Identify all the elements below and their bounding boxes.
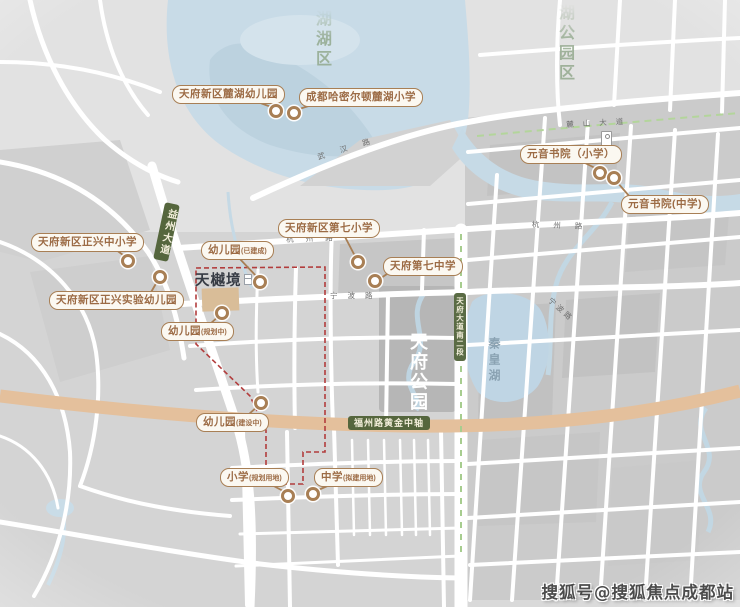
school-marker <box>368 274 382 288</box>
school-pill-luhu-kindergarten: 天府新区麓湖幼儿园 <box>172 85 285 104</box>
project-label: 天樾境 <box>195 274 252 289</box>
school-marker <box>607 171 621 185</box>
school-pill-text: 元音书院（小学） <box>527 148 615 160</box>
school-marker <box>254 396 268 410</box>
landmark-icon <box>601 131 612 146</box>
watermark: 搜狐号@搜狐焦点成都站 <box>542 579 735 603</box>
school-pill-zhengxing-exp-kindergarten: 天府新区正兴实验幼儿园 <box>49 291 184 310</box>
project-name: 天樾境 <box>195 274 242 289</box>
road-badge-tianfu-avenue-s2: 天府大道南二段 <box>454 293 466 361</box>
road-name-wuhan: 武汉路 <box>316 131 387 162</box>
school-pill-text: 天府新区麓湖幼儿园 <box>179 88 278 100</box>
school-marker <box>121 254 135 268</box>
road-badge-yizhou-avenue: 益州大道 <box>153 202 180 262</box>
district-label-park: 湖公园区 <box>552 4 576 84</box>
school-pill-sub: (建设中) <box>236 420 262 427</box>
school-pill-text: 中学 <box>321 471 343 483</box>
school-pill-no7-primary: 天府新区第七小学 <box>278 219 380 238</box>
school-pill-yuanyin-primary: 元音书院（小学） <box>520 145 622 164</box>
school-pill-text: 天府新区第七小学 <box>285 222 373 234</box>
school-pill-kindergarten-built: 幼儿园(已建成) <box>201 241 274 260</box>
school-marker <box>593 166 607 180</box>
school-pill-text: 成都哈密尔顿麓湖小学 <box>306 91 416 103</box>
school-pill-text: 天府第七中学 <box>390 260 456 272</box>
school-pill-text: 天府新区正兴实验幼儿园 <box>56 294 177 306</box>
school-marker <box>269 104 283 118</box>
school-pill-sub: (规划用地) <box>249 475 282 482</box>
road-badge-fuzhou-golden-axis: 福州路黄金中轴 <box>348 416 430 430</box>
school-pill-kindergarten-under-construction: 幼儿园(建设中) <box>196 413 269 432</box>
school-pill-text: 小学 <box>227 471 249 483</box>
area-label-qinhuang-lake: 秦皇湖 <box>486 337 503 385</box>
school-pill-no7-middle: 天府第七中学 <box>383 257 463 276</box>
school-marker <box>287 106 301 120</box>
school-pill-text: 天府新区正兴中小学 <box>38 236 137 248</box>
school-marker <box>281 489 295 503</box>
school-pill-hamilton-primary: 成都哈密尔顿麓湖小学 <box>299 88 423 107</box>
school-pill-text: 幼儿园 <box>168 325 201 337</box>
school-marker <box>351 255 365 269</box>
school-marker <box>253 275 267 289</box>
school-pill-middle-planned-land: 中学(拟建用地) <box>314 468 383 487</box>
location-map: 湖湖区 湖公园区 天府公园 秦皇湖 益州大道 天府大道南二段 福州路黄金中轴 武… <box>0 0 740 607</box>
school-marker <box>215 306 229 320</box>
school-pill-text: 幼儿园 <box>203 416 236 428</box>
road-name-lushan-avenue: 麓山大道 <box>566 116 632 130</box>
road-name-ningbo-east: 宁波路 <box>546 295 577 324</box>
school-pill-text: 元音书院(中学) <box>628 198 702 210</box>
project-logo-icon <box>244 274 252 285</box>
road-name-hangzhou-east: 杭州路 <box>532 219 597 232</box>
school-pill-zhengxing-school: 天府新区正兴中小学 <box>31 233 144 252</box>
area-label-tianfu-park: 天府公园 <box>405 332 431 412</box>
school-pill-sub: (规划中) <box>201 329 227 336</box>
school-pill-text: 幼儿园 <box>208 244 241 256</box>
road-name-ningbo-west: 宁波路 <box>330 290 383 301</box>
school-pill-yuanyin-middle: 元音书院(中学) <box>621 195 709 214</box>
district-label-lake: 湖湖区 <box>309 10 333 70</box>
school-marker <box>306 487 320 501</box>
school-pill-sub: (已建成) <box>241 248 267 255</box>
school-pill-primary-planned-land: 小学(规划用地) <box>220 468 289 487</box>
school-pill-kindergarten-planned: 幼儿园(规划中) <box>161 322 234 341</box>
school-pill-sub: (拟建用地) <box>343 475 376 482</box>
school-marker <box>153 270 167 284</box>
